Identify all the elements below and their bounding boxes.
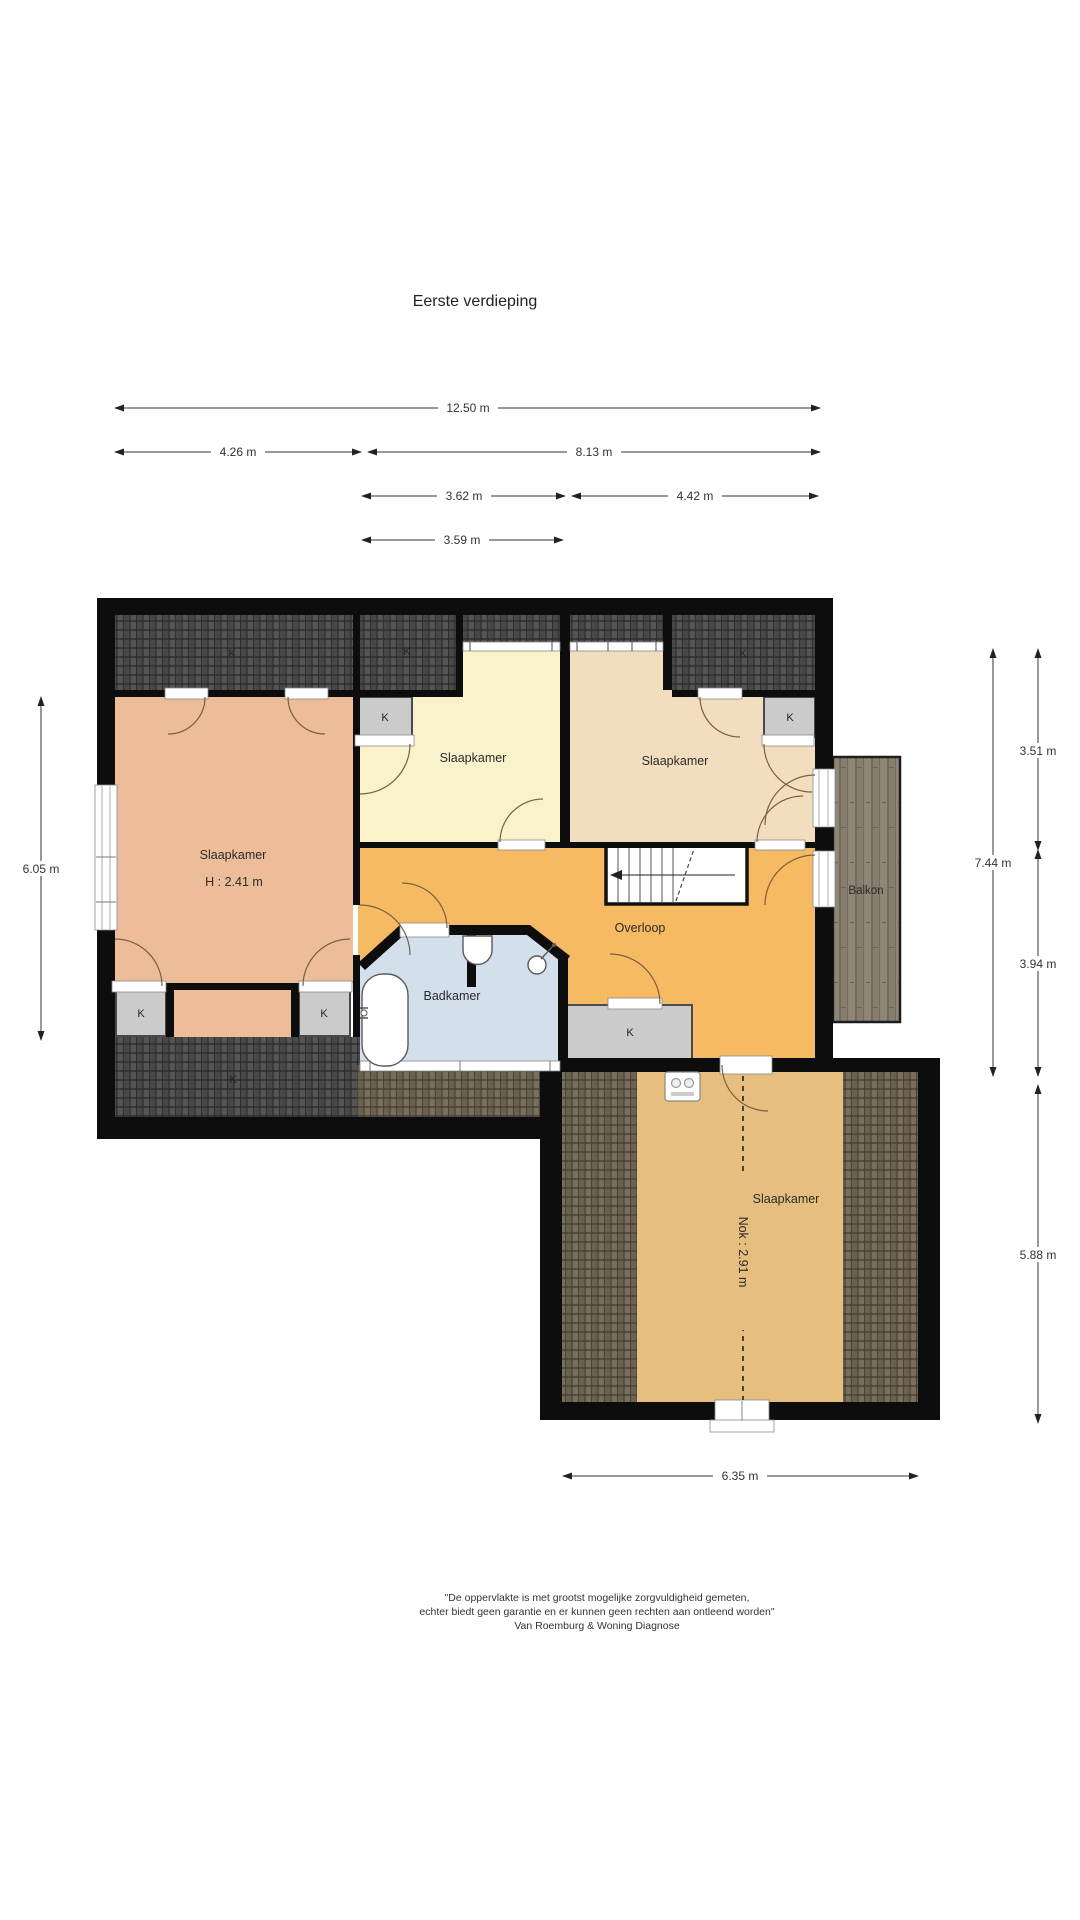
closet-label: K xyxy=(320,1008,328,1020)
label-overloop: Overloop xyxy=(615,921,666,935)
closet-label: K xyxy=(739,648,747,660)
window-dormer-left xyxy=(463,642,560,651)
closet-label: K xyxy=(403,646,411,658)
closet-label: K xyxy=(381,712,389,724)
label-slaapkamer-bottom: Slaapkamer xyxy=(753,1192,820,1206)
label-slaapkamer-left: Slaapkamer xyxy=(200,848,267,862)
bathtub-icon xyxy=(362,974,408,1066)
dim-mid-right: 4.42 m xyxy=(677,489,714,503)
label-balkon: Balkon xyxy=(848,885,883,897)
closet-label: K xyxy=(786,712,794,724)
floorplan-svg: Eerste verdieping xyxy=(0,0,1080,1920)
label-slaapkamer-mid: Slaapkamer xyxy=(440,751,507,765)
dim-mid-left: 3.62 m xyxy=(446,489,483,503)
dim-bottom: 6.35 m xyxy=(722,1469,759,1483)
dim-top-left: 4.26 m xyxy=(220,445,257,459)
door-bottom-room xyxy=(720,1056,772,1074)
dim-right-total: 7.44 m xyxy=(975,856,1012,870)
closet-label: K xyxy=(228,648,236,660)
room-slaapkamer-left xyxy=(115,690,353,983)
stairs xyxy=(606,846,747,904)
label-badkamer: Badkamer xyxy=(424,989,481,1003)
dim-right-upper: 3.51 m xyxy=(1020,744,1057,758)
dim-top-right: 8.13 m xyxy=(576,445,613,459)
footer-disclaimer: "De oppervlakte is met grootst mogelijke… xyxy=(419,1592,774,1632)
footer-line-3: Van Roemburg & Woning Diagnose xyxy=(514,1620,680,1632)
window-dormer-right xyxy=(570,642,663,651)
label-slaapkamer-right: Slaapkamer xyxy=(642,754,709,768)
dim-top-total: 12.50 m xyxy=(446,401,489,415)
label-ridge-height: Nok : 2.91 m xyxy=(736,1217,750,1288)
roof-bottom-room-left xyxy=(562,1072,637,1402)
sink-icon xyxy=(528,956,546,974)
roof-bottom-room-right xyxy=(843,1072,918,1402)
footer-line-2: echter biedt geen garantie en er kunnen … xyxy=(419,1606,774,1618)
dim-right-lower: 3.94 m xyxy=(1020,957,1057,971)
page-title: Eerste verdieping xyxy=(413,293,538,310)
label-height: H : 2.41 m xyxy=(205,875,263,889)
dim-mid-small: 3.59 m xyxy=(444,533,481,547)
closet-label: K xyxy=(229,1074,237,1086)
door-balkon-lower xyxy=(813,851,835,907)
room-floors xyxy=(115,650,918,1402)
ventilation-unit-icon xyxy=(665,1072,700,1101)
toilet-icon xyxy=(463,936,492,965)
dim-left-side: 6.05 m xyxy=(23,862,60,876)
door-balkon-upper xyxy=(813,769,835,827)
closet-label: K xyxy=(626,1027,634,1039)
dim-right-bottom: 5.88 m xyxy=(1020,1248,1057,1262)
closet-label: K xyxy=(137,1008,145,1020)
footer-line-1: "De oppervlakte is met grootst mogelijke… xyxy=(445,1592,750,1604)
roof-below-badkamer xyxy=(357,1065,562,1117)
floorplan-page: Eerste verdieping xyxy=(0,0,1080,1920)
